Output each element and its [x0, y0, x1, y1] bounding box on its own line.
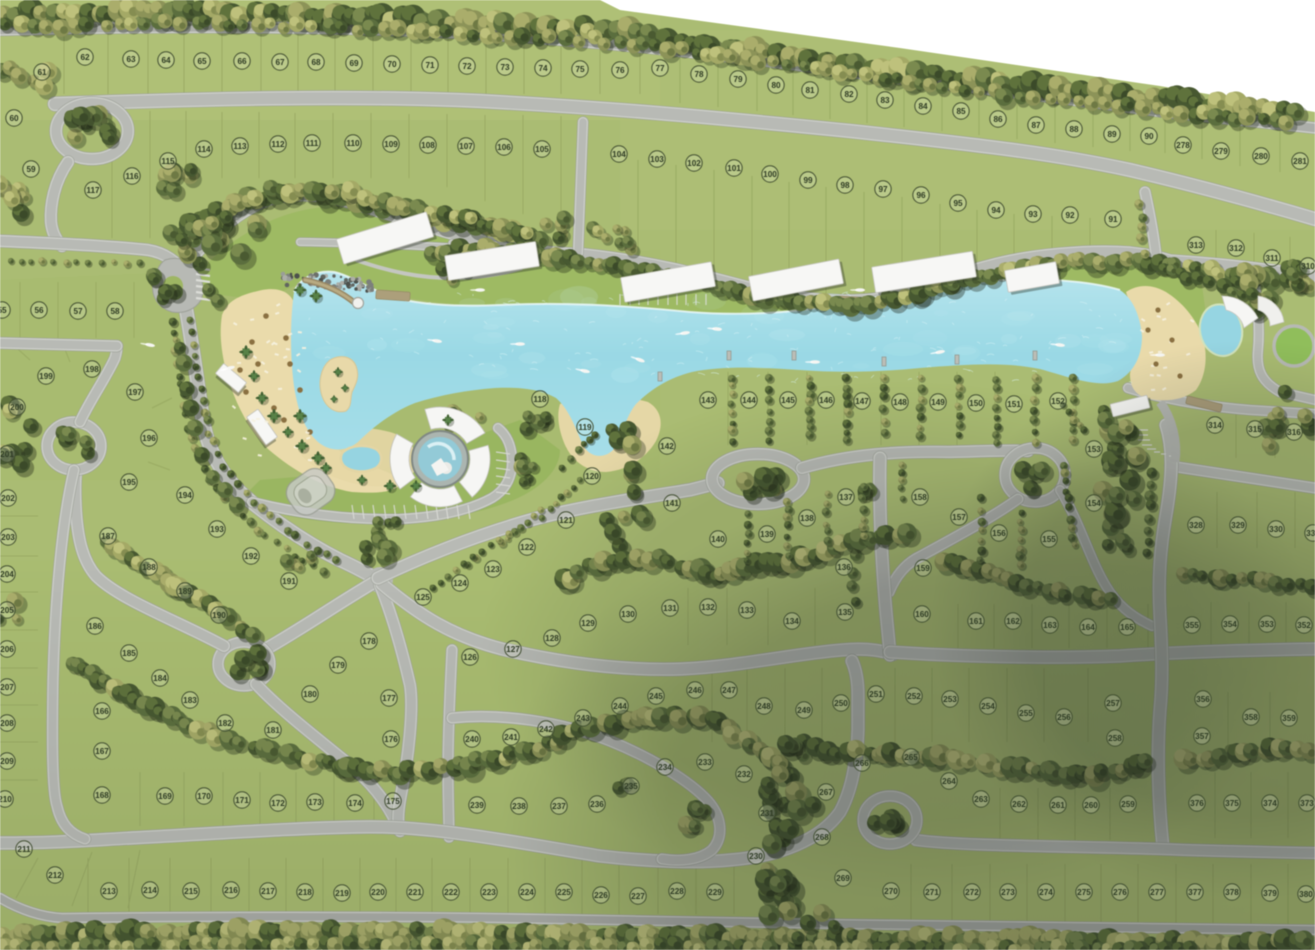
svg-text:224: 224 — [520, 888, 534, 897]
svg-text:259: 259 — [1121, 800, 1135, 809]
svg-text:233: 233 — [698, 758, 712, 767]
svg-text:218: 218 — [298, 888, 312, 897]
svg-text:72: 72 — [462, 62, 472, 71]
svg-text:80: 80 — [771, 81, 781, 90]
svg-text:253: 253 — [943, 695, 957, 704]
svg-text:200: 200 — [10, 403, 24, 412]
svg-text:240: 240 — [465, 735, 479, 744]
svg-text:135: 135 — [838, 608, 852, 617]
svg-text:277: 277 — [1150, 888, 1164, 897]
svg-text:357: 357 — [1195, 732, 1209, 741]
svg-text:89: 89 — [1107, 130, 1117, 139]
svg-text:126: 126 — [463, 653, 477, 662]
svg-text:267: 267 — [819, 788, 833, 797]
svg-text:79: 79 — [733, 75, 743, 84]
svg-text:261: 261 — [1051, 801, 1065, 810]
svg-text:101: 101 — [727, 164, 741, 173]
svg-text:93: 93 — [1028, 210, 1038, 219]
svg-text:152: 152 — [1051, 397, 1065, 406]
svg-text:181: 181 — [266, 726, 280, 735]
svg-text:159: 159 — [916, 564, 930, 573]
svg-text:222: 222 — [444, 888, 458, 897]
svg-text:331: 331 — [1306, 529, 1315, 538]
svg-text:142: 142 — [660, 442, 674, 451]
svg-text:269: 269 — [836, 874, 850, 883]
svg-text:176: 176 — [384, 735, 398, 744]
svg-text:211: 211 — [17, 845, 31, 854]
svg-text:191: 191 — [282, 577, 296, 586]
svg-text:378: 378 — [1225, 888, 1239, 897]
svg-text:91: 91 — [1108, 215, 1118, 224]
svg-text:221: 221 — [408, 888, 422, 897]
svg-text:355: 355 — [1185, 621, 1199, 630]
svg-text:119: 119 — [578, 423, 592, 432]
svg-text:132: 132 — [701, 603, 715, 612]
svg-text:174: 174 — [348, 799, 362, 808]
svg-text:212: 212 — [48, 871, 62, 880]
svg-text:232: 232 — [737, 770, 751, 779]
svg-text:83: 83 — [880, 96, 890, 105]
svg-text:167: 167 — [95, 747, 109, 756]
svg-text:359: 359 — [1282, 714, 1296, 723]
svg-text:154: 154 — [1087, 499, 1101, 508]
svg-text:374: 374 — [1263, 799, 1277, 808]
svg-text:266: 266 — [855, 759, 869, 768]
svg-text:263: 263 — [974, 795, 988, 804]
svg-text:158: 158 — [913, 493, 927, 502]
svg-text:56: 56 — [34, 306, 44, 315]
svg-text:177: 177 — [382, 694, 396, 703]
svg-text:100: 100 — [763, 170, 777, 179]
svg-text:197: 197 — [128, 388, 142, 397]
svg-text:243: 243 — [576, 714, 590, 723]
svg-text:280: 280 — [1254, 152, 1268, 161]
svg-text:313: 313 — [1189, 241, 1203, 250]
svg-text:153: 153 — [1087, 445, 1101, 454]
svg-text:209: 209 — [0, 757, 14, 766]
svg-text:134: 134 — [785, 617, 799, 626]
svg-text:169: 169 — [158, 792, 172, 801]
svg-text:68: 68 — [311, 58, 321, 67]
svg-text:217: 217 — [261, 887, 275, 896]
svg-text:236: 236 — [590, 800, 604, 809]
svg-text:247: 247 — [722, 686, 736, 695]
svg-text:190: 190 — [212, 611, 226, 620]
svg-text:157: 157 — [952, 513, 966, 522]
svg-text:352: 352 — [1297, 621, 1311, 630]
svg-text:205: 205 — [0, 606, 14, 615]
svg-text:116: 116 — [125, 172, 139, 181]
svg-text:85: 85 — [956, 107, 966, 116]
svg-text:156: 156 — [992, 529, 1006, 538]
svg-text:65: 65 — [197, 57, 207, 66]
svg-text:88: 88 — [1069, 125, 1079, 134]
svg-text:273: 273 — [1001, 888, 1015, 897]
svg-text:316: 316 — [1287, 428, 1301, 437]
svg-text:95: 95 — [953, 199, 963, 208]
svg-text:310: 310 — [1301, 262, 1315, 271]
svg-text:258: 258 — [1108, 734, 1122, 743]
svg-text:239: 239 — [470, 801, 484, 810]
svg-text:255: 255 — [1019, 709, 1033, 718]
svg-text:57: 57 — [73, 307, 83, 316]
svg-text:172: 172 — [271, 799, 285, 808]
svg-text:314: 314 — [1208, 421, 1222, 430]
svg-text:74: 74 — [538, 64, 548, 73]
svg-text:111: 111 — [306, 139, 319, 148]
svg-text:166: 166 — [95, 707, 109, 716]
svg-text:61: 61 — [37, 68, 47, 77]
svg-text:55: 55 — [0, 306, 7, 315]
svg-text:171: 171 — [235, 796, 249, 805]
svg-text:163: 163 — [1043, 621, 1057, 630]
svg-text:75: 75 — [575, 65, 585, 74]
svg-text:250: 250 — [834, 699, 848, 708]
svg-text:125: 125 — [416, 593, 430, 602]
svg-text:201: 201 — [0, 450, 14, 459]
svg-text:127: 127 — [506, 645, 520, 654]
svg-text:137: 137 — [839, 493, 853, 502]
svg-text:281: 281 — [1293, 157, 1307, 166]
svg-text:123: 123 — [486, 565, 500, 574]
svg-text:214: 214 — [143, 886, 157, 895]
svg-text:268: 268 — [815, 833, 829, 842]
svg-text:312: 312 — [1229, 244, 1243, 253]
svg-text:178: 178 — [362, 637, 376, 646]
svg-text:168: 168 — [95, 791, 109, 800]
svg-text:67: 67 — [275, 58, 285, 67]
svg-text:252: 252 — [907, 692, 921, 701]
svg-text:248: 248 — [757, 702, 771, 711]
svg-text:246: 246 — [688, 686, 702, 695]
svg-text:170: 170 — [197, 792, 211, 801]
svg-text:144: 144 — [742, 396, 756, 405]
svg-text:265: 265 — [904, 753, 918, 762]
svg-text:104: 104 — [612, 150, 626, 159]
svg-text:274: 274 — [1039, 888, 1053, 897]
svg-text:102: 102 — [687, 159, 701, 168]
svg-text:122: 122 — [520, 543, 534, 552]
svg-text:380: 380 — [1299, 890, 1313, 899]
svg-text:377: 377 — [1188, 888, 1202, 897]
svg-text:60: 60 — [9, 114, 19, 123]
svg-text:109: 109 — [384, 140, 398, 149]
svg-text:133: 133 — [740, 606, 754, 615]
svg-text:73: 73 — [500, 63, 510, 72]
svg-text:63: 63 — [126, 55, 136, 64]
svg-text:329: 329 — [1231, 521, 1245, 530]
svg-text:76: 76 — [615, 66, 625, 75]
svg-text:77: 77 — [655, 64, 665, 73]
svg-text:130: 130 — [621, 610, 635, 619]
svg-text:206: 206 — [0, 645, 14, 654]
svg-text:373: 373 — [1300, 799, 1314, 808]
svg-text:260: 260 — [1084, 801, 1098, 810]
svg-text:356: 356 — [1196, 695, 1210, 704]
svg-text:141: 141 — [665, 499, 679, 508]
svg-text:328: 328 — [1189, 521, 1203, 530]
svg-text:228: 228 — [670, 887, 684, 896]
svg-text:90: 90 — [1144, 132, 1154, 141]
svg-text:220: 220 — [371, 888, 385, 897]
svg-text:183: 183 — [183, 696, 197, 705]
svg-text:118: 118 — [533, 395, 547, 404]
svg-text:121: 121 — [559, 516, 573, 525]
svg-text:353: 353 — [1260, 620, 1274, 629]
svg-text:59: 59 — [26, 165, 36, 174]
svg-text:202: 202 — [1, 494, 15, 503]
svg-text:161: 161 — [969, 617, 983, 626]
svg-text:164: 164 — [1081, 623, 1095, 632]
svg-text:257: 257 — [1106, 699, 1120, 708]
svg-text:148: 148 — [893, 398, 907, 407]
svg-text:108: 108 — [421, 141, 435, 150]
svg-text:229: 229 — [708, 888, 722, 897]
svg-text:195: 195 — [122, 478, 136, 487]
svg-text:251: 251 — [869, 690, 883, 699]
svg-text:199: 199 — [39, 372, 53, 381]
svg-text:106: 106 — [497, 143, 511, 152]
svg-text:226: 226 — [594, 891, 608, 900]
svg-text:216: 216 — [224, 886, 238, 895]
svg-text:124: 124 — [453, 579, 467, 588]
svg-text:69: 69 — [349, 59, 359, 68]
svg-text:131: 131 — [663, 604, 677, 613]
svg-text:128: 128 — [545, 634, 559, 643]
svg-text:105: 105 — [535, 145, 549, 154]
svg-text:196: 196 — [142, 434, 156, 443]
svg-text:179: 179 — [331, 661, 345, 670]
svg-text:207: 207 — [0, 683, 14, 692]
svg-text:315: 315 — [1248, 425, 1262, 434]
svg-text:184: 184 — [153, 674, 167, 683]
svg-text:210: 210 — [0, 795, 12, 804]
svg-text:358: 358 — [1244, 713, 1258, 722]
svg-text:110: 110 — [346, 139, 360, 148]
svg-text:275: 275 — [1077, 888, 1091, 897]
svg-text:147: 147 — [855, 397, 869, 406]
svg-text:237: 237 — [552, 802, 566, 811]
svg-text:165: 165 — [1120, 623, 1134, 632]
svg-text:227: 227 — [631, 892, 645, 901]
svg-text:230: 230 — [749, 852, 763, 861]
svg-text:185: 185 — [122, 649, 136, 658]
svg-text:173: 173 — [308, 798, 322, 807]
svg-text:160: 160 — [915, 610, 929, 619]
svg-text:113: 113 — [233, 142, 247, 151]
svg-text:145: 145 — [781, 396, 795, 405]
svg-text:58: 58 — [110, 307, 120, 316]
svg-text:86: 86 — [993, 115, 1003, 124]
svg-text:99: 99 — [803, 176, 813, 185]
svg-text:115: 115 — [161, 157, 175, 166]
svg-text:215: 215 — [184, 887, 198, 896]
svg-text:270: 270 — [884, 887, 898, 896]
svg-text:279: 279 — [1214, 147, 1228, 156]
svg-text:354: 354 — [1223, 620, 1237, 629]
svg-text:379: 379 — [1263, 889, 1277, 898]
svg-text:96: 96 — [916, 191, 926, 200]
svg-text:278: 278 — [1176, 141, 1190, 150]
svg-text:180: 180 — [303, 690, 317, 699]
svg-text:225: 225 — [557, 888, 571, 897]
svg-text:78: 78 — [694, 70, 704, 79]
svg-text:149: 149 — [931, 398, 945, 407]
svg-text:272: 272 — [965, 888, 979, 897]
svg-text:98: 98 — [840, 181, 850, 190]
svg-text:151: 151 — [1007, 400, 1021, 409]
svg-text:71: 71 — [425, 61, 435, 70]
svg-text:235: 235 — [624, 782, 638, 791]
svg-text:198: 198 — [85, 365, 99, 374]
svg-text:84: 84 — [918, 102, 928, 111]
svg-text:187: 187 — [101, 532, 115, 541]
svg-text:242: 242 — [539, 725, 553, 734]
svg-text:188: 188 — [142, 563, 156, 572]
svg-text:87: 87 — [1031, 121, 1041, 130]
svg-text:66: 66 — [237, 57, 247, 66]
svg-text:189: 189 — [178, 587, 192, 596]
svg-text:231: 231 — [760, 809, 774, 818]
svg-text:238: 238 — [512, 802, 526, 811]
svg-text:64: 64 — [161, 56, 171, 65]
svg-text:223: 223 — [482, 888, 496, 897]
svg-text:194: 194 — [178, 491, 192, 500]
svg-text:375: 375 — [1225, 799, 1239, 808]
svg-text:139: 139 — [760, 530, 774, 539]
svg-text:140: 140 — [711, 535, 725, 544]
svg-text:103: 103 — [650, 155, 664, 164]
svg-text:264: 264 — [942, 777, 956, 786]
svg-text:245: 245 — [649, 692, 663, 701]
svg-text:193: 193 — [210, 525, 224, 534]
svg-text:204: 204 — [0, 570, 14, 579]
svg-text:254: 254 — [981, 702, 995, 711]
svg-text:244: 244 — [613, 702, 627, 711]
svg-text:81: 81 — [805, 86, 815, 95]
svg-text:262: 262 — [1012, 800, 1026, 809]
svg-text:330: 330 — [1269, 525, 1283, 534]
svg-text:241: 241 — [504, 733, 518, 742]
svg-text:208: 208 — [0, 719, 14, 728]
svg-text:112: 112 — [271, 140, 285, 149]
svg-text:62: 62 — [80, 53, 90, 62]
svg-text:175: 175 — [386, 797, 400, 806]
svg-text:138: 138 — [800, 514, 814, 523]
svg-text:271: 271 — [925, 888, 939, 897]
svg-text:219: 219 — [335, 889, 349, 898]
svg-text:192: 192 — [244, 552, 258, 561]
svg-text:186: 186 — [88, 622, 102, 631]
svg-text:256: 256 — [1057, 713, 1071, 722]
svg-text:129: 129 — [581, 619, 595, 628]
svg-text:234: 234 — [658, 763, 672, 772]
svg-text:150: 150 — [969, 399, 983, 408]
svg-text:376: 376 — [1190, 799, 1204, 808]
svg-text:155: 155 — [1042, 535, 1056, 544]
svg-text:70: 70 — [387, 60, 397, 69]
svg-text:114: 114 — [197, 145, 211, 154]
svg-text:107: 107 — [459, 142, 473, 151]
svg-text:97: 97 — [878, 185, 888, 194]
svg-text:92: 92 — [1065, 211, 1075, 220]
svg-text:143: 143 — [701, 396, 715, 405]
svg-text:117: 117 — [86, 186, 100, 195]
svg-text:82: 82 — [844, 90, 854, 99]
svg-text:94: 94 — [991, 206, 1001, 215]
svg-text:276: 276 — [1113, 888, 1127, 897]
svg-text:213: 213 — [102, 887, 116, 896]
svg-text:162: 162 — [1006, 617, 1020, 626]
svg-text:146: 146 — [819, 396, 833, 405]
svg-text:120: 120 — [585, 472, 599, 481]
svg-text:249: 249 — [797, 706, 811, 715]
svg-text:182: 182 — [218, 719, 232, 728]
svg-text:203: 203 — [1, 533, 15, 542]
svg-text:311: 311 — [1265, 254, 1279, 263]
svg-text:136: 136 — [837, 563, 851, 572]
